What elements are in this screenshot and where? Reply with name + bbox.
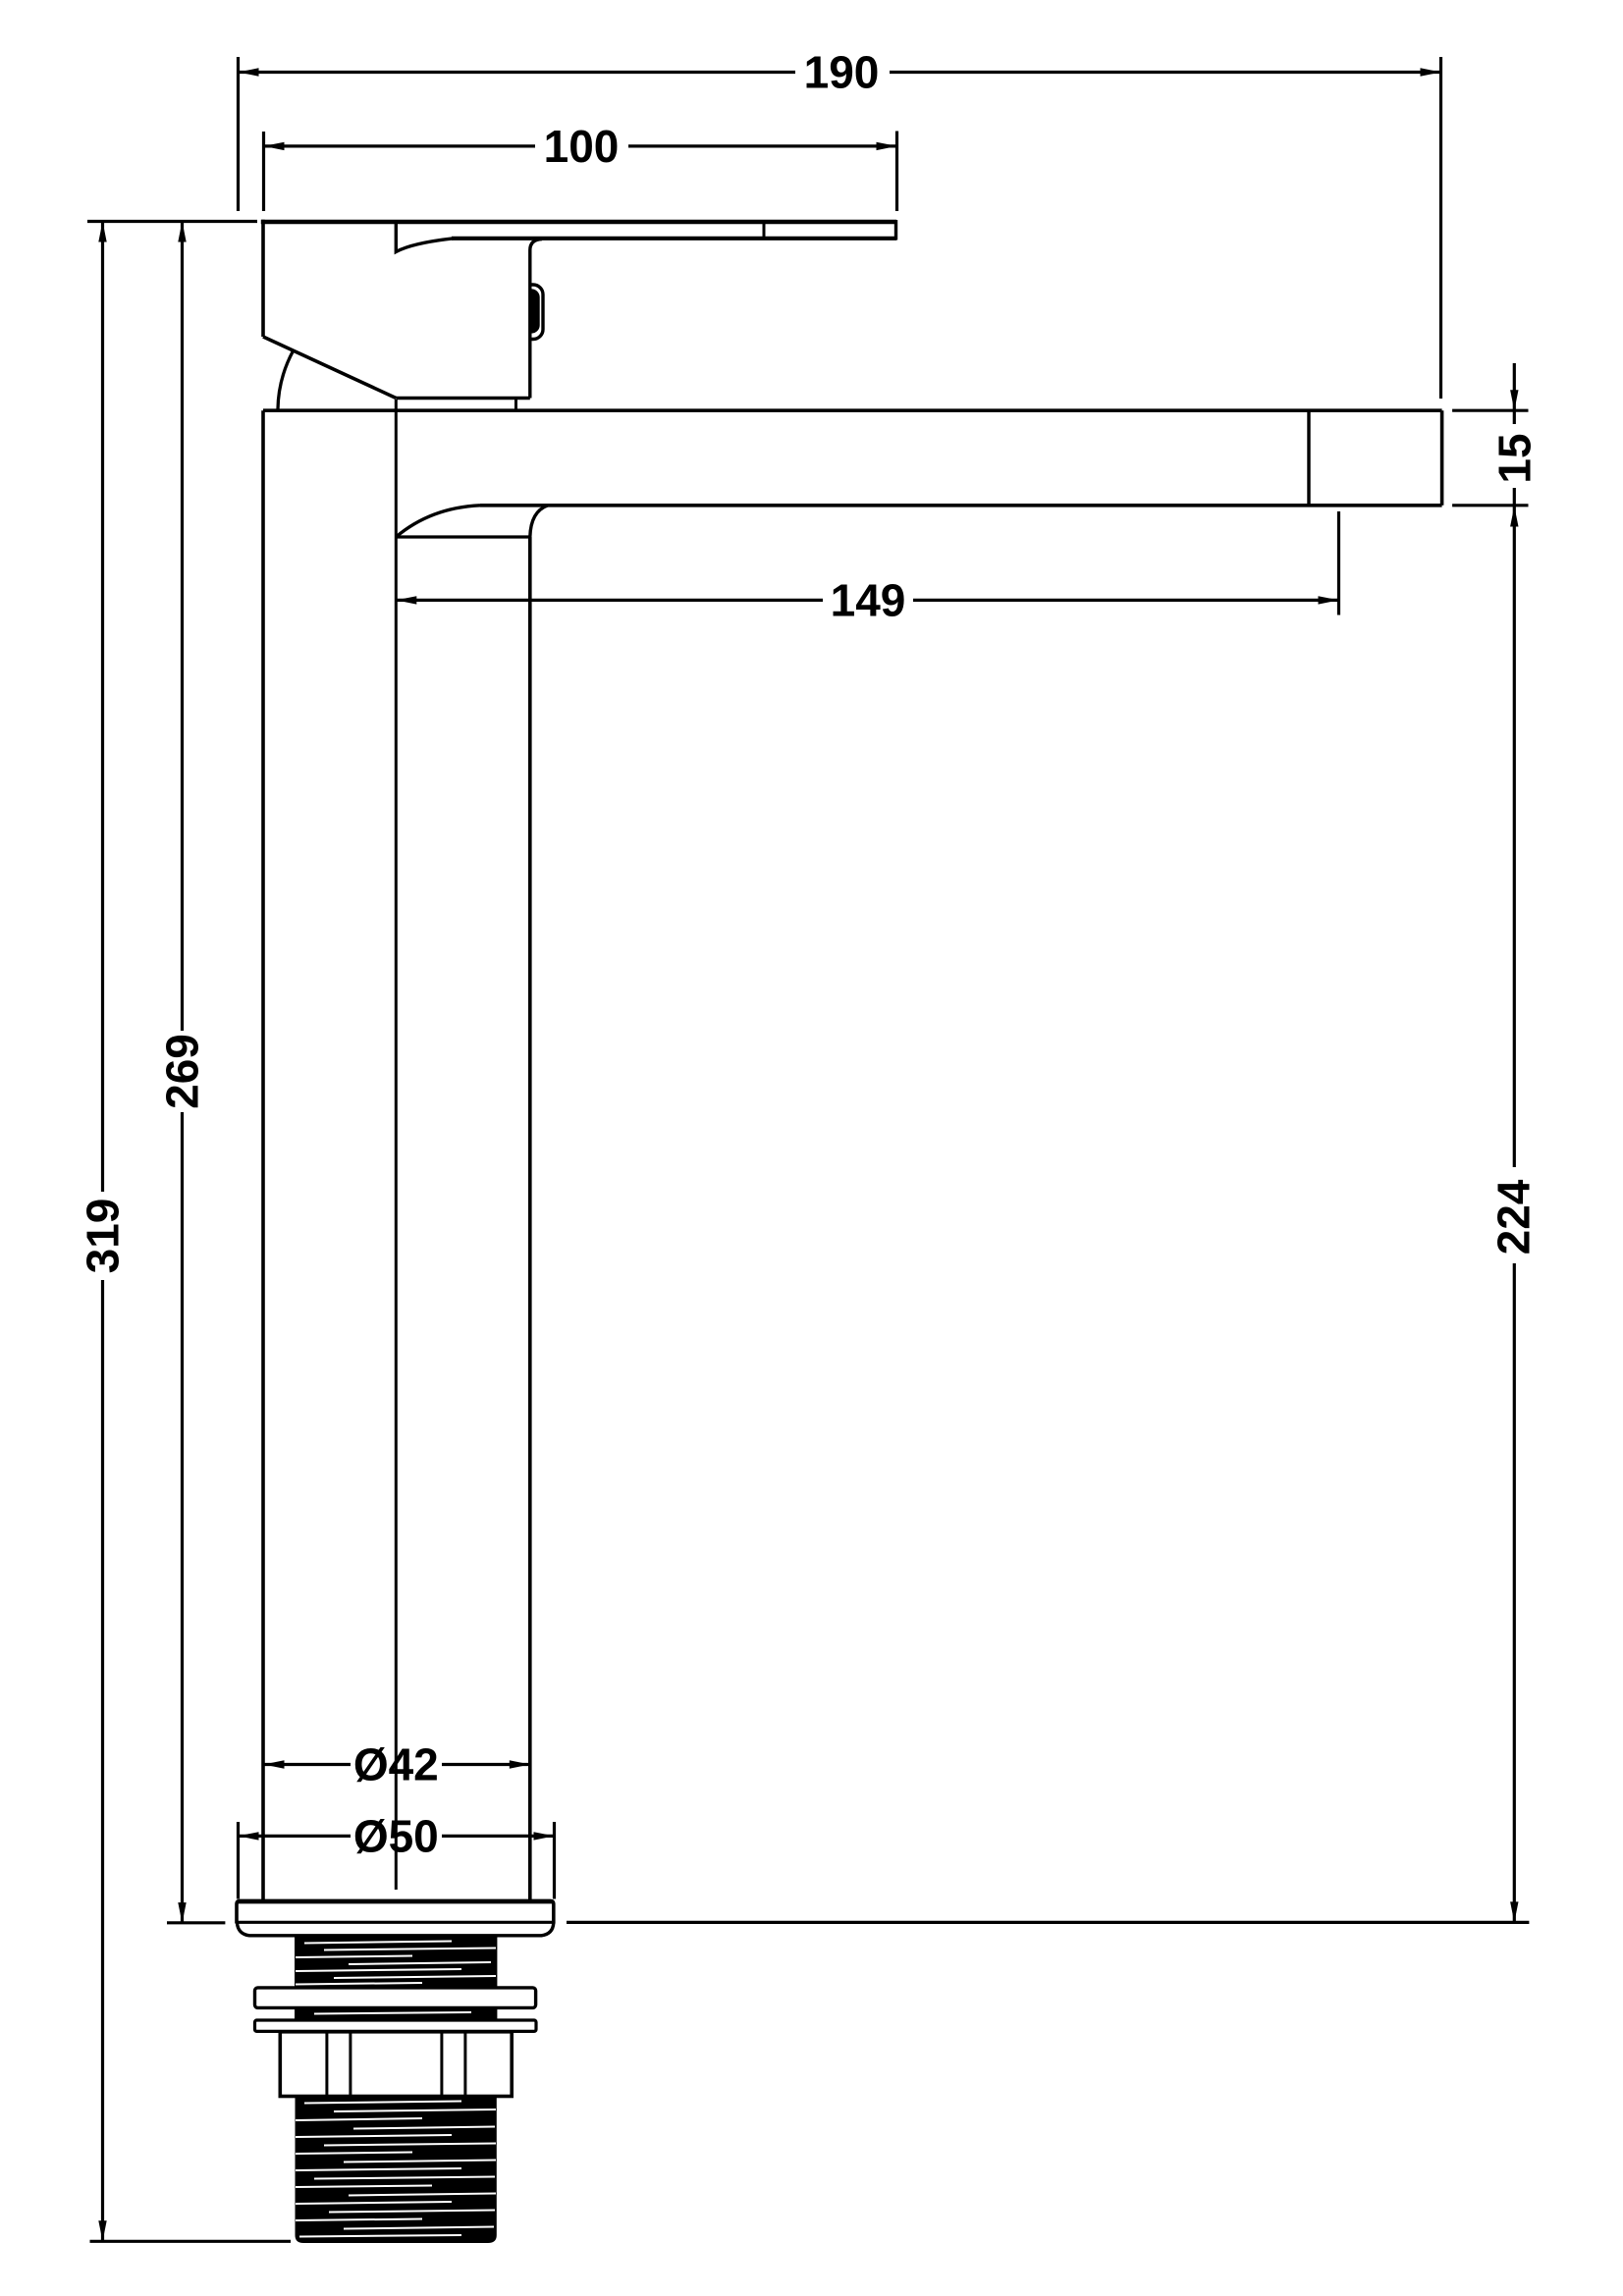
- svg-text:224: 224: [1488, 1179, 1540, 1255]
- svg-text:269: 269: [157, 1034, 208, 1109]
- svg-text:100: 100: [544, 121, 620, 172]
- svg-text:Ø42: Ø42: [353, 1739, 439, 1790]
- svg-text:Ø50: Ø50: [353, 1810, 439, 1861]
- svg-text:149: 149: [831, 574, 906, 625]
- svg-text:15: 15: [1488, 433, 1540, 483]
- svg-text:190: 190: [804, 47, 880, 98]
- svg-text:319: 319: [78, 1199, 129, 1274]
